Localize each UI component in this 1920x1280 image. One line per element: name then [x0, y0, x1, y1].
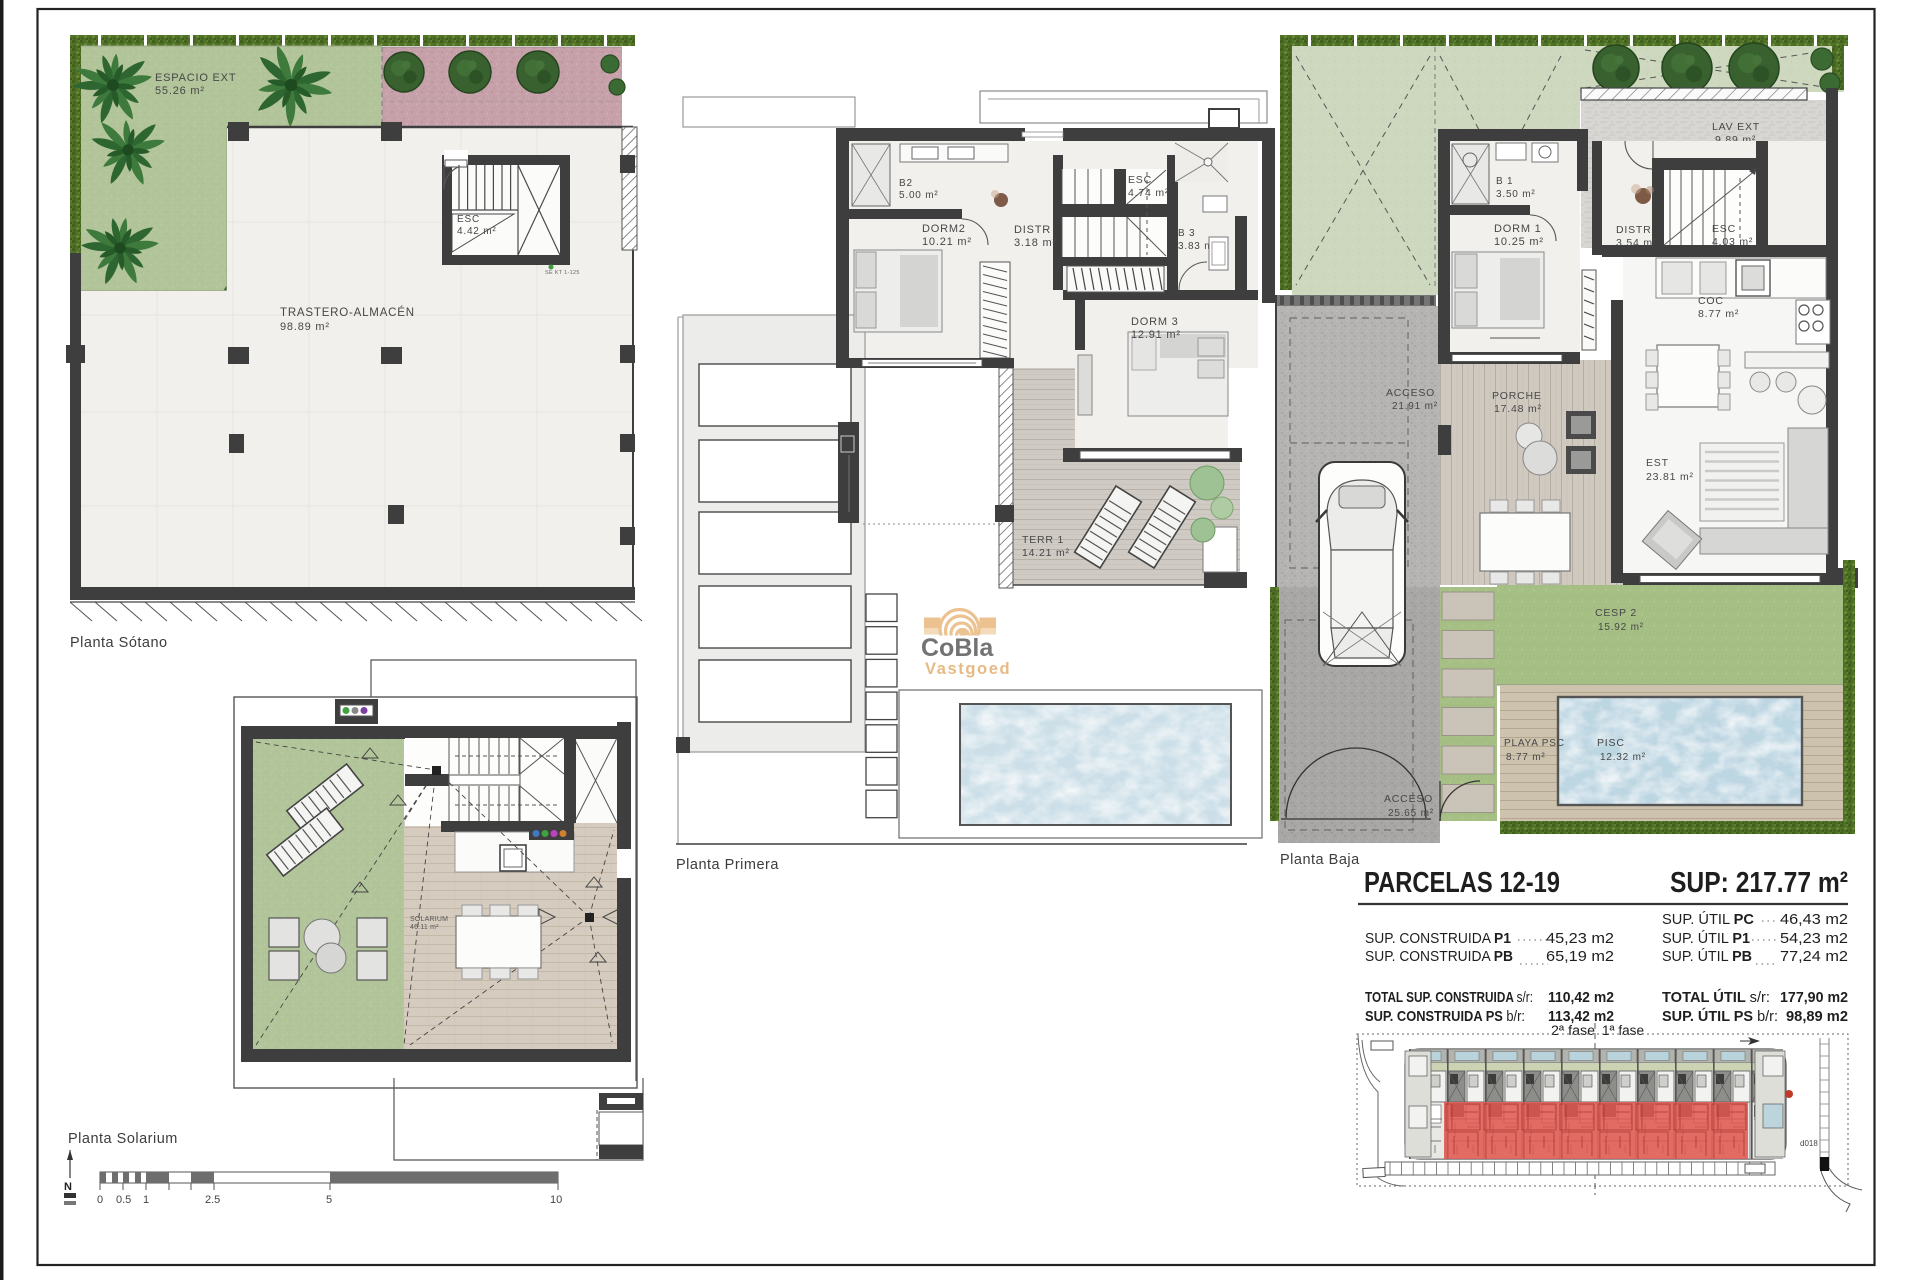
svg-text:ESC: ESC	[457, 214, 480, 225]
svg-text:0: 0	[97, 1194, 103, 1206]
svg-text:TOTAL ÚTIL s/r:: TOTAL ÚTIL s/r:	[1662, 988, 1770, 1006]
svg-text:SUP. ÚTIL PC: SUP. ÚTIL PC	[1662, 911, 1754, 928]
svg-text:177,90 m2: 177,90 m2	[1780, 989, 1848, 1006]
svg-text:Planta Sótano: Planta Sótano	[70, 635, 168, 651]
svg-text:SUP. ÚTIL PS b/r:: SUP. ÚTIL PS b/r:	[1662, 1007, 1778, 1025]
svg-text:10: 10	[550, 1194, 562, 1206]
svg-text:ESPACIO EXT: ESPACIO EXT	[155, 72, 236, 84]
svg-text:Planta Baja: Planta Baja	[1280, 852, 1360, 868]
svg-text:DORM 3: DORM 3	[1131, 316, 1179, 328]
svg-text:5: 5	[326, 1194, 332, 1206]
svg-text:DISTR: DISTR	[1014, 224, 1051, 236]
svg-text:3.18 m²: 3.18 m²	[1014, 237, 1057, 249]
svg-text:77,24 m2: 77,24 m2	[1780, 948, 1848, 965]
svg-text:98.89 m²: 98.89 m²	[280, 321, 330, 333]
svg-text:12.32 m²: 12.32 m²	[1600, 752, 1646, 763]
svg-text:23.81 m²: 23.81 m²	[1646, 471, 1694, 483]
svg-text:0.5: 0.5	[116, 1194, 131, 1206]
svg-text:SUP. CONSTRUIDA PB: SUP. CONSTRUIDA PB	[1365, 948, 1513, 965]
svg-text:54,23 m2: 54,23 m2	[1780, 930, 1848, 947]
svg-text:98,89 m2: 98,89 m2	[1786, 1008, 1848, 1025]
svg-text:15.92 m²: 15.92 m²	[1598, 622, 1644, 633]
svg-text:SE KT 1-125: SE KT 1-125	[545, 270, 580, 276]
svg-text:ACCESO: ACCESO	[1386, 387, 1435, 399]
svg-text:SUP. CONSTRUIDA P1: SUP. CONSTRUIDA P1	[1365, 930, 1511, 947]
svg-text:DORM2: DORM2	[922, 223, 966, 235]
svg-text:110,42 m2: 110,42 m2	[1548, 989, 1614, 1006]
svg-text:PARCELAS 12-19: PARCELAS 12-19	[1364, 867, 1560, 899]
svg-text:TERR 1: TERR 1	[1022, 534, 1064, 546]
svg-text:25.65 m²: 25.65 m²	[1388, 808, 1434, 819]
svg-text:PISC: PISC	[1597, 737, 1625, 749]
svg-text:1: 1	[143, 1194, 149, 1206]
svg-text:LAV EXT: LAV EXT	[1712, 121, 1760, 133]
svg-text:8.77 m²: 8.77 m²	[1698, 308, 1739, 320]
svg-text:ESC: ESC	[1128, 174, 1152, 186]
svg-text:4.03 m²: 4.03 m²	[1712, 236, 1753, 248]
svg-text:SUP: 217.77 m²: SUP: 217.77 m²	[1670, 867, 1848, 899]
svg-text:CoBla: CoBla	[921, 634, 994, 662]
svg-text:SUP. ÚTIL P1: SUP. ÚTIL P1	[1662, 930, 1750, 947]
svg-text:COC: COC	[1698, 295, 1724, 307]
svg-text:12.91 m²: 12.91 m²	[1131, 329, 1181, 341]
svg-text:CESP 2: CESP 2	[1595, 607, 1637, 619]
svg-text:B2: B2	[899, 178, 913, 189]
svg-text:DISTR: DISTR	[1616, 224, 1652, 236]
svg-text:DORM 1: DORM 1	[1494, 223, 1542, 235]
svg-text:SOLARIUM: SOLARIUM	[410, 916, 448, 923]
svg-text:5.00 m²: 5.00 m²	[899, 190, 939, 201]
svg-text:SUP. ÚTIL PB: SUP. ÚTIL PB	[1662, 948, 1752, 965]
svg-text:d018: d018	[1800, 1139, 1818, 1148]
svg-text:ESC: ESC	[1712, 223, 1736, 235]
svg-text:2.5: 2.5	[205, 1194, 220, 1206]
svg-text:Planta Primera: Planta Primera	[676, 857, 779, 873]
svg-text:4.74 m²: 4.74 m²	[1128, 187, 1169, 199]
svg-text:17.48 m²: 17.48 m²	[1494, 403, 1542, 415]
svg-text:N: N	[64, 1181, 72, 1193]
svg-text:21.91 m²: 21.91 m²	[1392, 401, 1438, 412]
svg-text:2ª fase: 2ª fase	[1551, 1023, 1595, 1038]
svg-text:10.21 m²: 10.21 m²	[922, 236, 972, 248]
svg-text:8.77 m²: 8.77 m²	[1506, 752, 1546, 763]
svg-text:14.21 m²: 14.21 m²	[1022, 547, 1070, 559]
svg-text:B 1: B 1	[1496, 176, 1513, 187]
svg-text:TRASTERO-ALMACÉN: TRASTERO-ALMACÉN	[280, 306, 415, 319]
svg-text:Planta Solarium: Planta Solarium	[68, 1131, 178, 1147]
svg-text:46,43 m2: 46,43 m2	[1780, 911, 1848, 928]
svg-text:55.26 m²: 55.26 m²	[155, 85, 205, 97]
svg-text:3.54 m²: 3.54 m²	[1616, 237, 1657, 249]
svg-text:10.25 m²: 10.25 m²	[1494, 236, 1544, 248]
svg-text:ACCESO: ACCESO	[1384, 793, 1433, 805]
svg-text:45,23 m2: 45,23 m2	[1546, 930, 1614, 947]
svg-text:1ª fase: 1ª fase	[1602, 1023, 1644, 1038]
svg-text:3.50 m²: 3.50 m²	[1496, 189, 1536, 200]
svg-text:EST: EST	[1646, 457, 1669, 469]
svg-text:TOTAL SUP. CONSTRUIDA s/r:: TOTAL SUP. CONSTRUIDA s/r:	[1365, 989, 1533, 1006]
svg-text:PLAYA PSC: PLAYA PSC	[1504, 738, 1565, 749]
svg-text:4.42 m²: 4.42 m²	[457, 226, 497, 237]
svg-text:SUP. CONSTRUIDA PS b/r:: SUP. CONSTRUIDA PS b/r:	[1365, 1008, 1525, 1025]
svg-text:65,19 m2: 65,19 m2	[1546, 948, 1614, 965]
svg-text:Vastgoed: Vastgoed	[925, 660, 1011, 678]
svg-text:B 3: B 3	[1178, 228, 1195, 239]
svg-text:46.11 m²: 46.11 m²	[410, 924, 439, 931]
svg-text:PORCHE: PORCHE	[1492, 390, 1542, 402]
